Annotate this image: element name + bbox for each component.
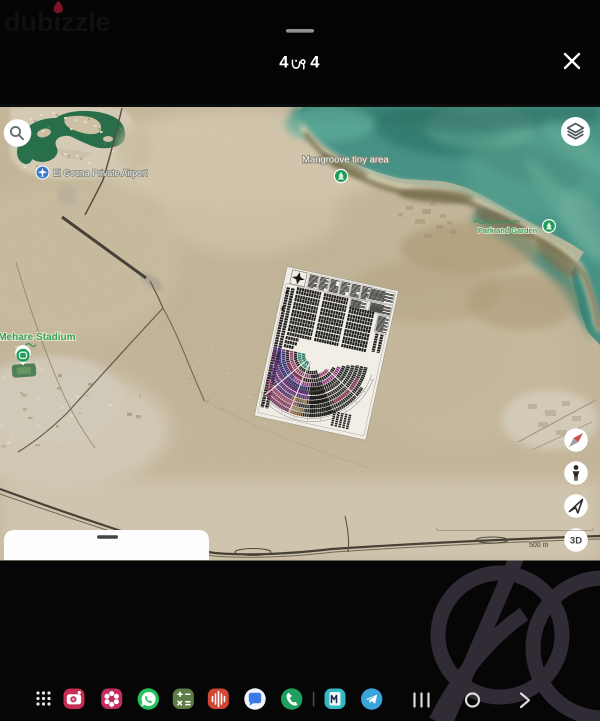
svg-text:500 m: 500 m [529, 542, 549, 549]
svg-text:El Mehare Stadium: El Mehare Stadium [0, 332, 76, 343]
svg-text:Mangroove tiny area: Mangroove tiny area [302, 155, 389, 166]
svg-text:El Gouna Private Airport: El Gouna Private Airport [53, 168, 148, 178]
svg-text:4: 4 [310, 54, 320, 72]
svg-text:4: 4 [279, 54, 289, 72]
svg-text:3D: 3D [570, 536, 582, 547]
svg-text:Park and Garden: Park and Garden [478, 226, 538, 235]
